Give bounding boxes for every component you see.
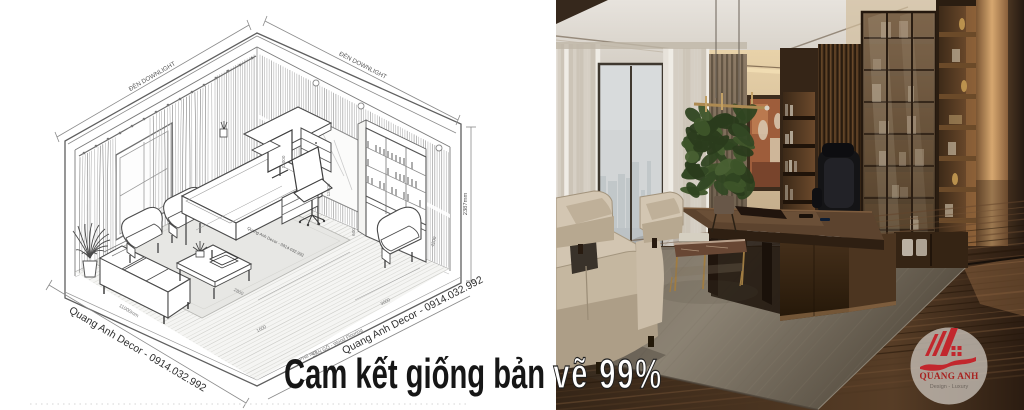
svg-text:12000: 12000 (326, 183, 331, 196)
svg-text:Design - Luxury: Design - Luxury (930, 384, 969, 390)
svg-text:12000: 12000 (281, 155, 286, 168)
svg-text:2387mm: 2387mm (463, 193, 469, 216)
svg-text:QUANG ANH: QUANG ANH (919, 371, 978, 381)
svg-text:600: 600 (351, 228, 356, 236)
